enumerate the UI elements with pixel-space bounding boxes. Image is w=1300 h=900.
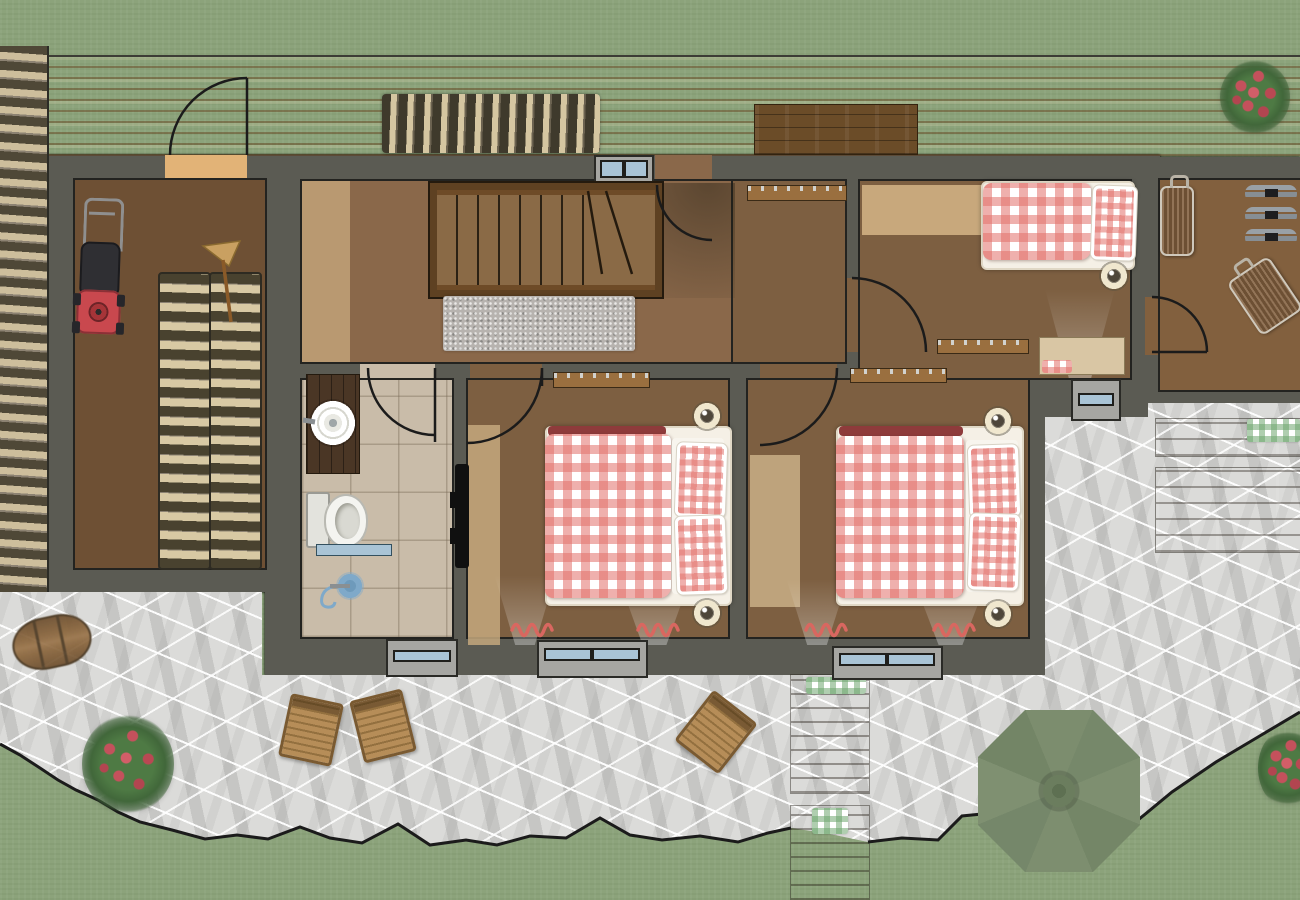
toilet [324, 494, 368, 548]
indoor-firewood-stack-right [209, 272, 262, 570]
window-bedroom1-pane-left [544, 648, 592, 661]
wall-hall-bed3-b [845, 352, 860, 364]
wall-skiroom-south [1145, 390, 1300, 403]
mower-grass-bag [79, 241, 121, 294]
ski-pair [1245, 207, 1297, 224]
wood-deck [48, 55, 1300, 157]
living-room-light-plank [302, 181, 350, 362]
ski-pair [1245, 229, 1297, 246]
radiator-bedroom3 [937, 339, 1029, 354]
bed3-pillow [1091, 185, 1138, 260]
bed2-duvet [836, 436, 964, 598]
wall-tv [455, 464, 469, 568]
flower-bush-garden [82, 714, 174, 814]
bed3-duvet [983, 183, 1091, 260]
opening-bathroom-door [360, 360, 435, 380]
mower-wheel [117, 295, 125, 307]
bed1-duvet [545, 434, 671, 598]
wall-hall-bed3-a [845, 183, 860, 278]
window-bedroom1-pane-right [592, 648, 640, 661]
spotlight [692, 401, 722, 431]
wall-skiroom-west-a [1145, 180, 1160, 297]
suitcase-upright [1160, 186, 1194, 256]
floor-hallway [733, 181, 845, 362]
firewood-facade-stack [0, 46, 49, 592]
floor-plan-canvas [0, 0, 1300, 900]
ski-pair [1245, 185, 1297, 202]
terrace-plank-deck [1156, 468, 1300, 552]
opening-bed2-door [760, 360, 837, 380]
opening-entrance-door [655, 155, 712, 183]
bedroom3-dresser [862, 185, 982, 235]
wall-skiroom-north [1145, 157, 1300, 180]
flower-bush-deck [1220, 60, 1290, 134]
bedroom1-closet-strip [468, 425, 500, 645]
spotlight [692, 598, 722, 628]
doormat-terrace [1247, 419, 1300, 442]
window-bathroom-pane [393, 650, 451, 662]
mower-wheel [116, 323, 124, 335]
spotlight [983, 599, 1013, 629]
spotlight [983, 406, 1013, 436]
window-north-pane-left [600, 160, 624, 178]
radiator-bedroom2 [850, 368, 947, 383]
flower-bush-edge [1258, 728, 1300, 808]
staircase [430, 183, 662, 297]
doormat-walkway-bottom [812, 808, 848, 834]
wall-west [48, 155, 75, 592]
radiator-hallway [747, 185, 847, 201]
bedroom3-slippers [1042, 360, 1072, 373]
opening-skiroom-door [1145, 297, 1160, 355]
mower-wheel [72, 321, 80, 333]
hallway-rug [443, 296, 635, 351]
bed1-pillow-top [675, 442, 728, 518]
window-bedroom2-pane-left [839, 653, 887, 666]
bed1-pillow-bottom [675, 515, 728, 595]
shower-glass-panel [316, 544, 392, 556]
indoor-firewood-stack-left [158, 272, 211, 570]
bed2-pillow-top [968, 444, 1020, 518]
lawn-mower [70, 197, 131, 341]
radiator-bedroom1 [553, 372, 650, 388]
spotlight [1099, 261, 1129, 291]
bathroom-sink [309, 399, 357, 447]
window-bedroom2-pane-right [887, 653, 935, 666]
wall-mid-west [265, 155, 302, 675]
opening-storage-deck-door [165, 155, 247, 183]
deck-table [754, 104, 918, 155]
opening-bed1-door [470, 360, 542, 380]
deck-firewood-stack [382, 94, 600, 153]
opening-bed3-door [845, 278, 860, 352]
shower-head [336, 572, 364, 600]
window-bedroom3-pane [1078, 393, 1114, 406]
bed2-blanket-band [839, 426, 963, 436]
mower-wheel [73, 293, 81, 305]
window-north-pane-right [624, 160, 648, 178]
bed2-pillow-bottom [968, 513, 1021, 591]
